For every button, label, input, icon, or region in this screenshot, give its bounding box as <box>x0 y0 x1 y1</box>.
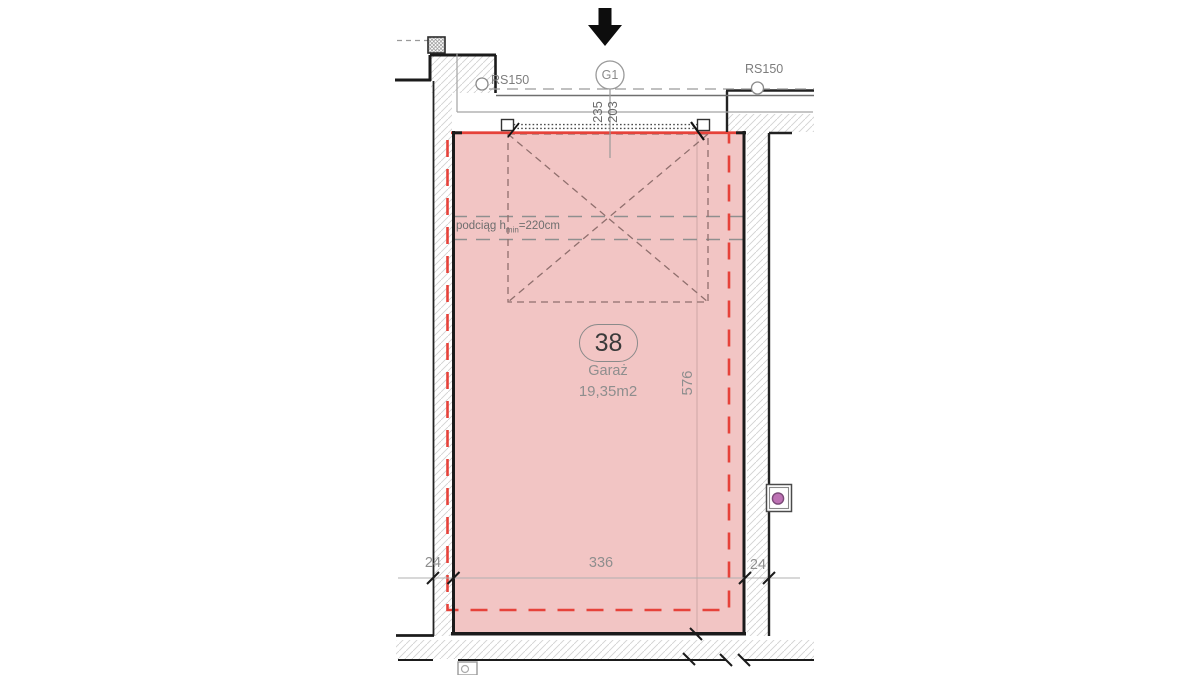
beam-note-suffix: =220cm <box>519 220 560 232</box>
beam-note: podciąg hmin=220cm <box>456 220 560 234</box>
entry-arrow-icon <box>588 8 622 46</box>
floor-plan-canvas: G1 RS150 RS150 235 203 podciąg hmin=220c… <box>0 0 1200 675</box>
beam-note-sub: min <box>506 225 519 234</box>
dim-width: 336 <box>578 555 624 571</box>
dim-door-outer: 235 <box>590 92 604 132</box>
grid-bubble-label: G1 <box>596 68 624 82</box>
unit-type-label: Garaż <box>560 363 656 379</box>
dim-depth: 576 <box>679 358 695 408</box>
beam-note-prefix: podciąg h <box>456 220 506 232</box>
rs150-label-left: RS150 <box>491 73 529 87</box>
outlet-symbol <box>767 485 792 512</box>
dim-door-inner: 203 <box>605 92 619 132</box>
unit-number-badge[interactable]: 38 <box>579 324 638 362</box>
rs150-circle-left <box>476 78 488 90</box>
rs150-label-right: RS150 <box>745 62 783 76</box>
unit-area-label: 19,35m2 <box>560 383 656 400</box>
dim-wall-left: 24 <box>420 555 446 571</box>
dim-wall-right: 24 <box>745 557 771 573</box>
rs150-circle-right <box>752 82 764 94</box>
floor-fixture <box>458 662 477 675</box>
column-crosshatch <box>428 37 445 53</box>
